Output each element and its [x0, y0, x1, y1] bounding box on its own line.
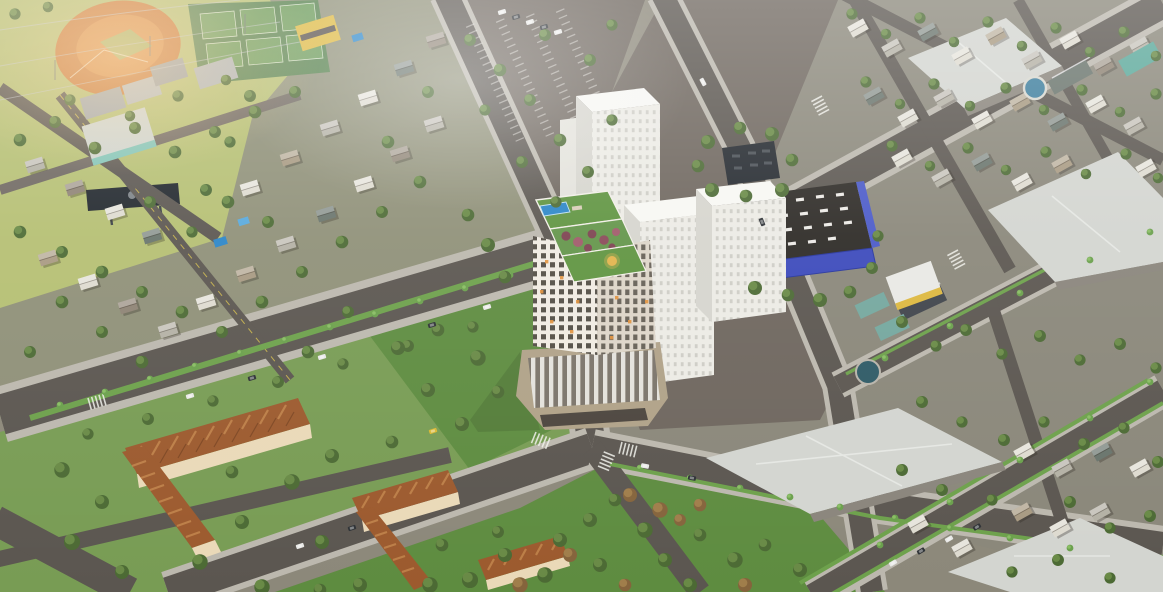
scene-canvas — [0, 0, 1163, 592]
haze-overlay — [0, 0, 1163, 592]
aerial-render — [0, 0, 1163, 592]
atmosphere — [0, 0, 1163, 592]
